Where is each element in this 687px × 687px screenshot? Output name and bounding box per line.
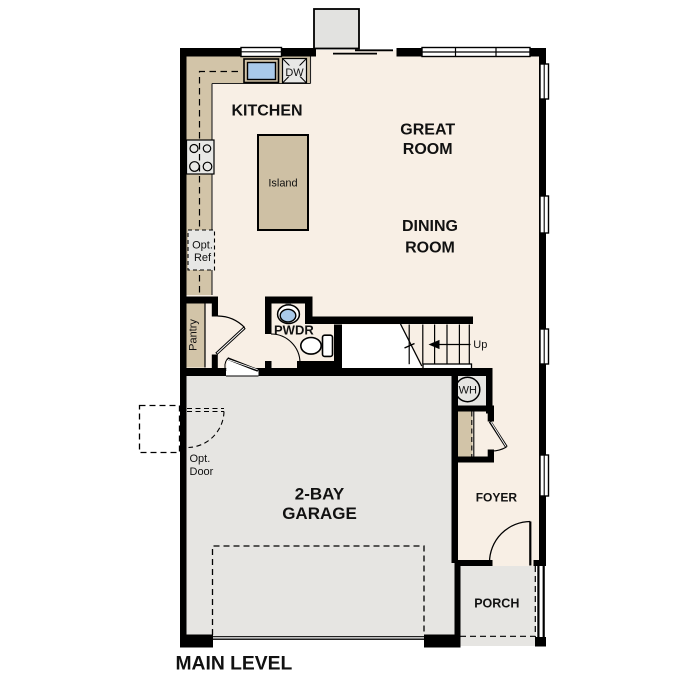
svg-text:DW: DW (285, 67, 304, 79)
svg-text:MAIN LEVEL: MAIN LEVEL (176, 653, 293, 674)
svg-text:KITCHEN: KITCHEN (231, 103, 302, 120)
svg-text:WH: WH (459, 385, 477, 397)
svg-text:GREAT: GREAT (400, 121, 455, 138)
svg-text:PORCH: PORCH (474, 596, 519, 610)
svg-text:2-BAY: 2-BAY (295, 484, 345, 503)
svg-text:ROOM: ROOM (403, 141, 453, 158)
svg-text:Door: Door (190, 466, 214, 478)
svg-text:Opt.: Opt. (192, 240, 213, 252)
svg-text:DINING: DINING (402, 218, 458, 235)
svg-text:Up: Up (473, 339, 487, 351)
svg-text:GARAGE: GARAGE (282, 504, 357, 523)
svg-text:ROOM: ROOM (405, 239, 455, 256)
svg-text:FOYER: FOYER (476, 490, 518, 504)
svg-text:Pantry: Pantry (188, 319, 200, 351)
svg-text:Opt.: Opt. (190, 453, 211, 465)
svg-text:Ref: Ref (194, 252, 212, 264)
svg-text:Island: Island (268, 177, 297, 189)
